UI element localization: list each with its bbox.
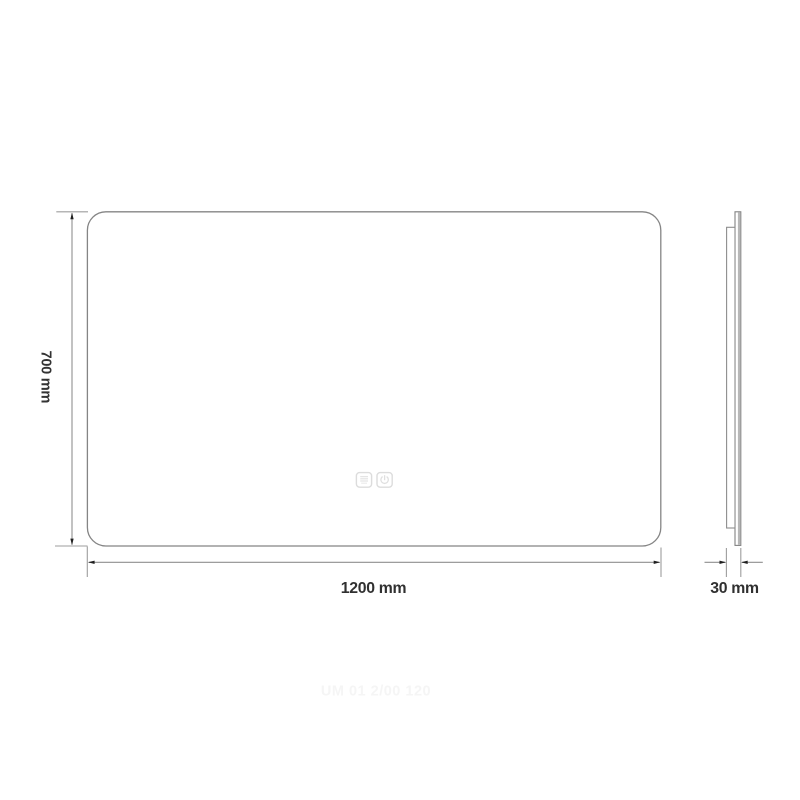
svg-text:UM 01 2/00 120: UM 01 2/00 120: [321, 684, 431, 700]
svg-text:700 mm: 700 mm: [38, 351, 54, 404]
svg-text:30 mm: 30 mm: [710, 580, 759, 597]
svg-text:1200 mm: 1200 mm: [341, 580, 407, 597]
